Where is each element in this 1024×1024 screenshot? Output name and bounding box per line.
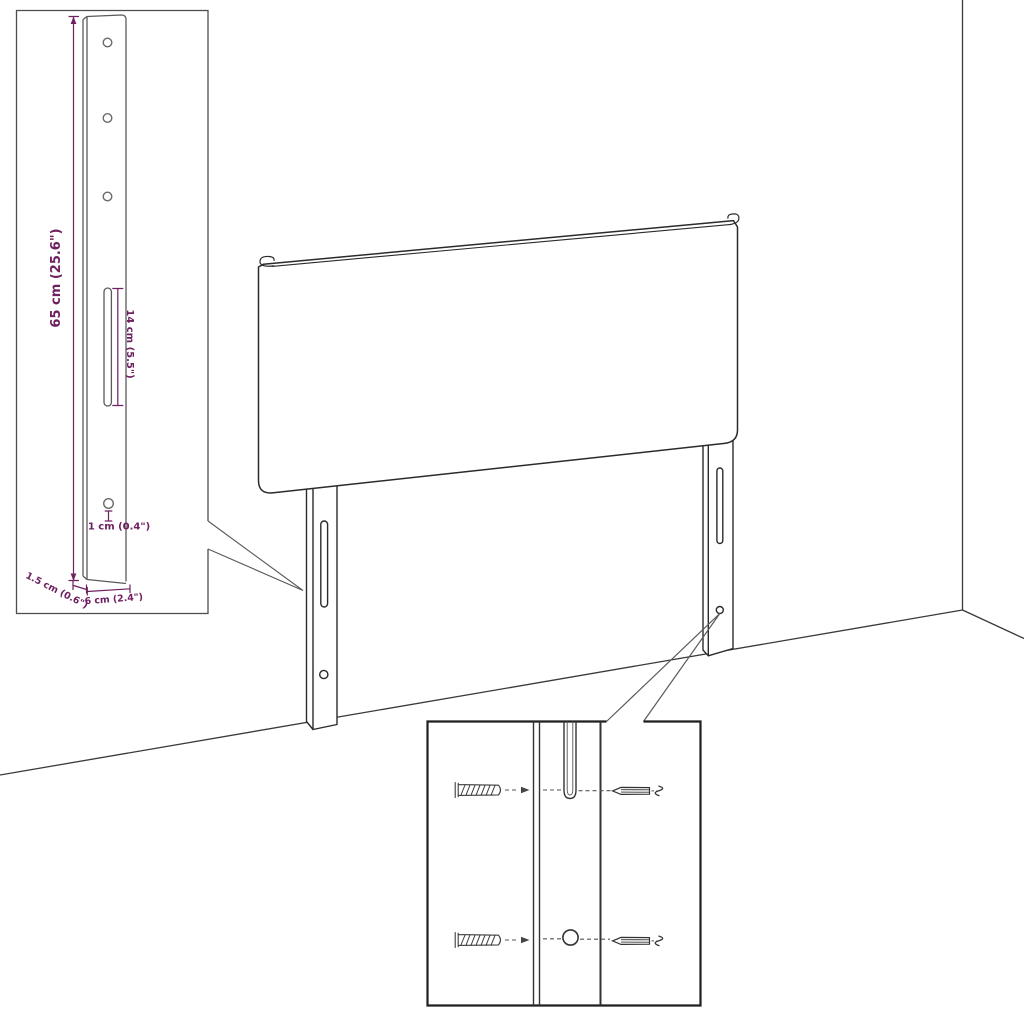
dimension-height-line xyxy=(69,17,80,581)
arrow-up-icon xyxy=(71,17,77,25)
floor-line-right xyxy=(963,610,1024,639)
screw-icon xyxy=(613,786,663,796)
dimension-depth: 1.5 cm (0.6") xyxy=(24,570,90,611)
dimension-height: 65 cm (25.6") xyxy=(49,17,79,582)
screw-body xyxy=(613,937,650,944)
screw-threads xyxy=(621,790,650,793)
dimension-depth-line xyxy=(73,581,87,594)
dimension-slot-label: 14 cm (5.5") xyxy=(124,309,135,378)
bracket-hole-2 xyxy=(103,114,112,123)
wall-plug-icon xyxy=(455,933,529,948)
hardware-detail-inset xyxy=(428,614,720,1006)
arrow-right-icon xyxy=(521,937,530,943)
right-leg-outline xyxy=(703,441,733,656)
dimension-depth-label: 1.5 cm (0.6") xyxy=(24,570,90,611)
arrow-right-icon xyxy=(521,787,530,793)
leg-side-lines xyxy=(534,722,540,1006)
bracket-hole-4 xyxy=(104,499,114,509)
dimension-height-label: 65 cm (25.6") xyxy=(49,228,64,327)
leg-hole xyxy=(563,930,578,945)
leg-slot-outline xyxy=(564,722,576,799)
headboard xyxy=(259,214,739,493)
bracket-hole-1 xyxy=(103,38,112,47)
dimension-hole-marker xyxy=(105,511,113,521)
bracket-drawing xyxy=(83,15,126,584)
left-leg-outline xyxy=(307,473,338,730)
wall-plug-icon xyxy=(455,783,529,798)
screw-threads xyxy=(621,940,650,943)
dimension-width: 6 cm (2.4") xyxy=(84,585,143,608)
wall-plug-hatch xyxy=(461,785,495,795)
wall-plug-hatch xyxy=(461,935,495,945)
dimension-slot-line xyxy=(112,289,123,406)
leg-slot-inner xyxy=(567,722,573,796)
dimension-width-label: 6 cm (2.4") xyxy=(84,592,143,608)
right-leg-bracket xyxy=(703,441,733,656)
dimension-hole-label: 1 cm (0.4") xyxy=(88,522,150,533)
callout-wedge-to-left-leg xyxy=(208,521,303,591)
left-leg-bracket xyxy=(307,473,338,730)
diagram-svg: 65 cm (25.6") 14 cm (5.5") 1 cm (0.4") 1… xyxy=(0,0,1024,1024)
dimension-hole: 1 cm (0.4") xyxy=(88,511,150,533)
bracket-top-edge xyxy=(83,15,126,20)
dimension-slot: 14 cm (5.5") xyxy=(112,289,135,406)
bracket-slot xyxy=(104,288,111,406)
leg-closeup xyxy=(534,722,601,1006)
arrow-down-icon xyxy=(71,574,77,582)
bracket-hole-3 xyxy=(103,192,112,201)
bracket-bottom-edge xyxy=(83,576,126,584)
floor-line-left xyxy=(0,610,963,775)
screw-icon xyxy=(613,936,663,946)
screw-body xyxy=(613,787,650,794)
product-diagram-canvas: 65 cm (25.6") 14 cm (5.5") 1 cm (0.4") 1… xyxy=(0,0,1024,1024)
